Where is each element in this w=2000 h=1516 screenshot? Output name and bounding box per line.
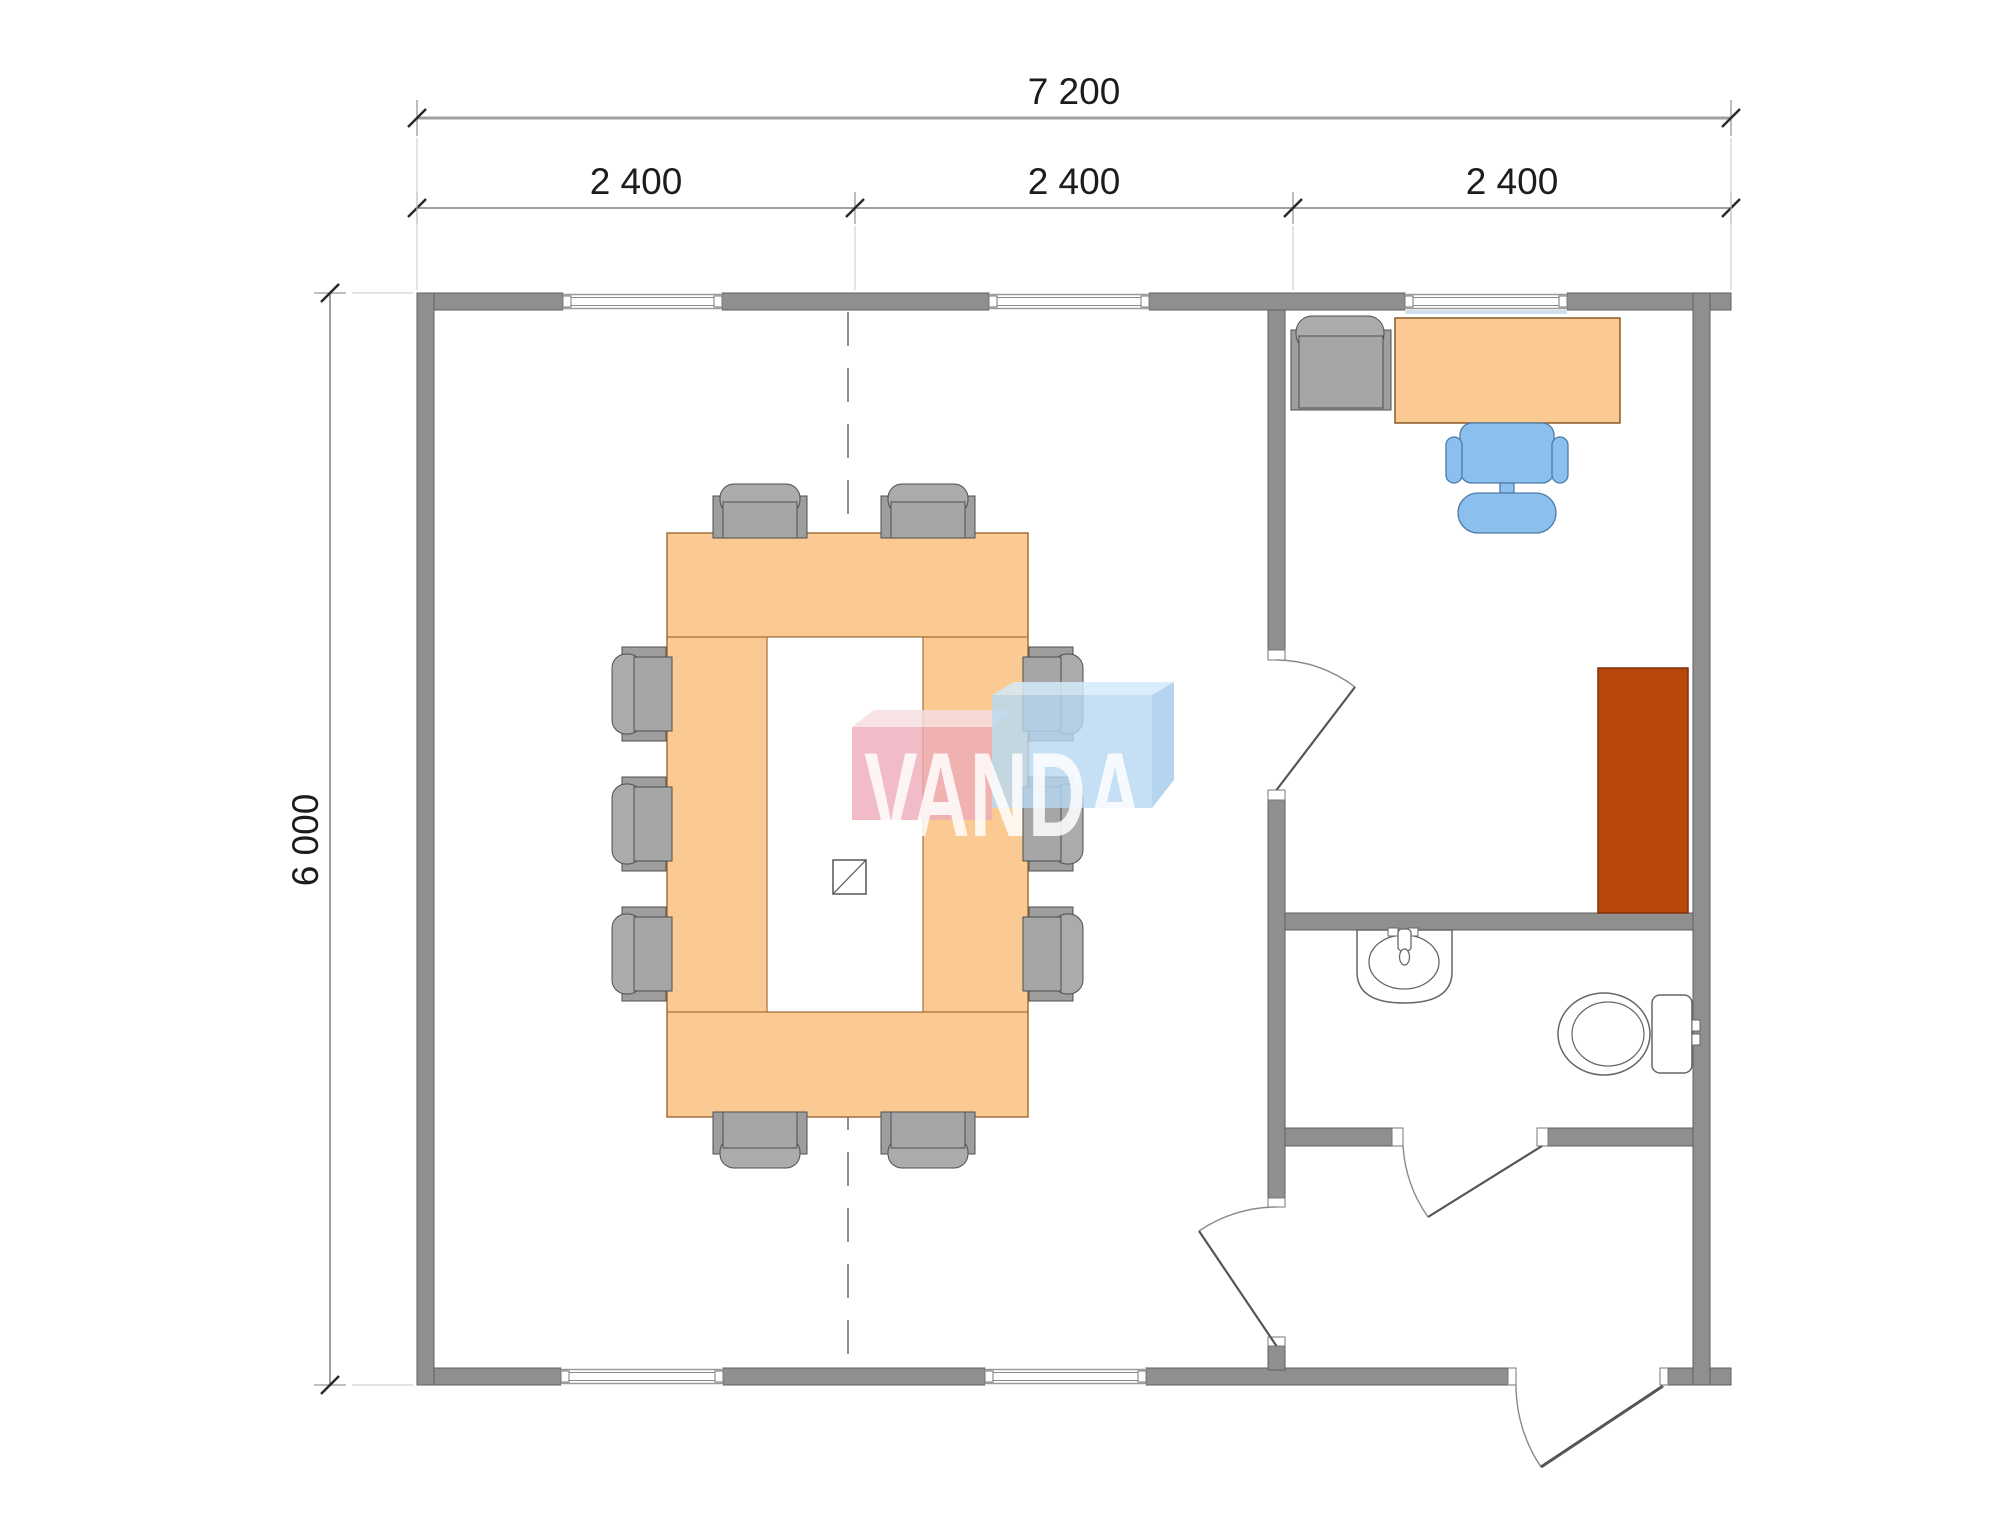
door-swing-arc xyxy=(1199,1207,1277,1231)
window-top-3 xyxy=(1405,293,1567,314)
grid-node-symbol xyxy=(833,860,866,894)
watermark-text: VANDA xyxy=(864,728,1144,862)
conference-chair xyxy=(713,484,807,538)
wall-bottom xyxy=(1146,1368,1516,1385)
wall-bottom xyxy=(417,1368,561,1385)
door-swing-arc xyxy=(1516,1385,1541,1467)
wall-left xyxy=(417,293,434,1385)
conference-chair xyxy=(1023,907,1083,1001)
wall-bathroom-entry xyxy=(1285,1128,1392,1146)
watermark-blue-side-face xyxy=(1152,682,1174,808)
door-entry xyxy=(1508,1368,1668,1467)
door-main-room xyxy=(1199,1198,1285,1346)
door-swing-arc xyxy=(1403,1146,1428,1217)
dim-label-segment-1: 2 400 xyxy=(590,161,683,202)
guest-armchair xyxy=(1291,316,1391,410)
window-top-1 xyxy=(563,293,722,310)
floor-plan-canvas: 7 200 2 400 2 400 2 400 6 000 xyxy=(0,0,2000,1516)
dim-label-overall-height: 6 000 xyxy=(285,794,326,887)
watermark-pink-top-face xyxy=(852,710,1014,727)
wall-interior-vertical xyxy=(1268,310,1285,650)
conference-chair xyxy=(881,1112,975,1168)
wall-right xyxy=(1693,293,1710,1385)
office-swivel-chair xyxy=(1446,423,1568,533)
door-leaf xyxy=(1428,1146,1542,1217)
dim-label-segment-2: 2 400 xyxy=(1028,161,1121,202)
door-leaf xyxy=(1541,1386,1663,1467)
wall-interior-vertical xyxy=(1268,1346,1285,1370)
window-bottom-1 xyxy=(561,1368,723,1385)
conference-chair xyxy=(612,907,672,1001)
conference-chair xyxy=(612,647,672,741)
door-leaf xyxy=(1277,687,1356,790)
office-desk xyxy=(1395,318,1620,423)
wall-interior-vertical xyxy=(1268,800,1285,1198)
window-bottom-2 xyxy=(985,1368,1146,1385)
wall-bottom xyxy=(723,1368,985,1385)
toilet xyxy=(1558,993,1700,1075)
watermark-blue-top-face xyxy=(992,682,1174,695)
door-office xyxy=(1268,650,1355,800)
sink xyxy=(1357,928,1452,1003)
door-leaf xyxy=(1199,1231,1277,1346)
window-sill-shading xyxy=(1405,310,1567,314)
dim-label-segment-3: 2 400 xyxy=(1466,161,1559,202)
conference-chair xyxy=(713,1112,807,1168)
wall-office-bathroom xyxy=(1285,913,1693,930)
door-swing-arc xyxy=(1277,660,1356,687)
wall-top xyxy=(722,293,989,310)
tall-cabinet xyxy=(1598,668,1688,913)
window-top-2 xyxy=(989,293,1149,310)
dim-label-overall-width: 7 200 xyxy=(1028,71,1121,112)
conference-chair xyxy=(881,484,975,538)
floor-plan-drawing: 7 200 2 400 2 400 2 400 6 000 xyxy=(0,0,2000,1516)
wall-top xyxy=(417,293,563,310)
door-bathroom xyxy=(1392,1128,1548,1217)
wall-bathroom-entry xyxy=(1548,1128,1693,1146)
conference-chair xyxy=(612,777,672,871)
wall-top xyxy=(1149,293,1405,310)
